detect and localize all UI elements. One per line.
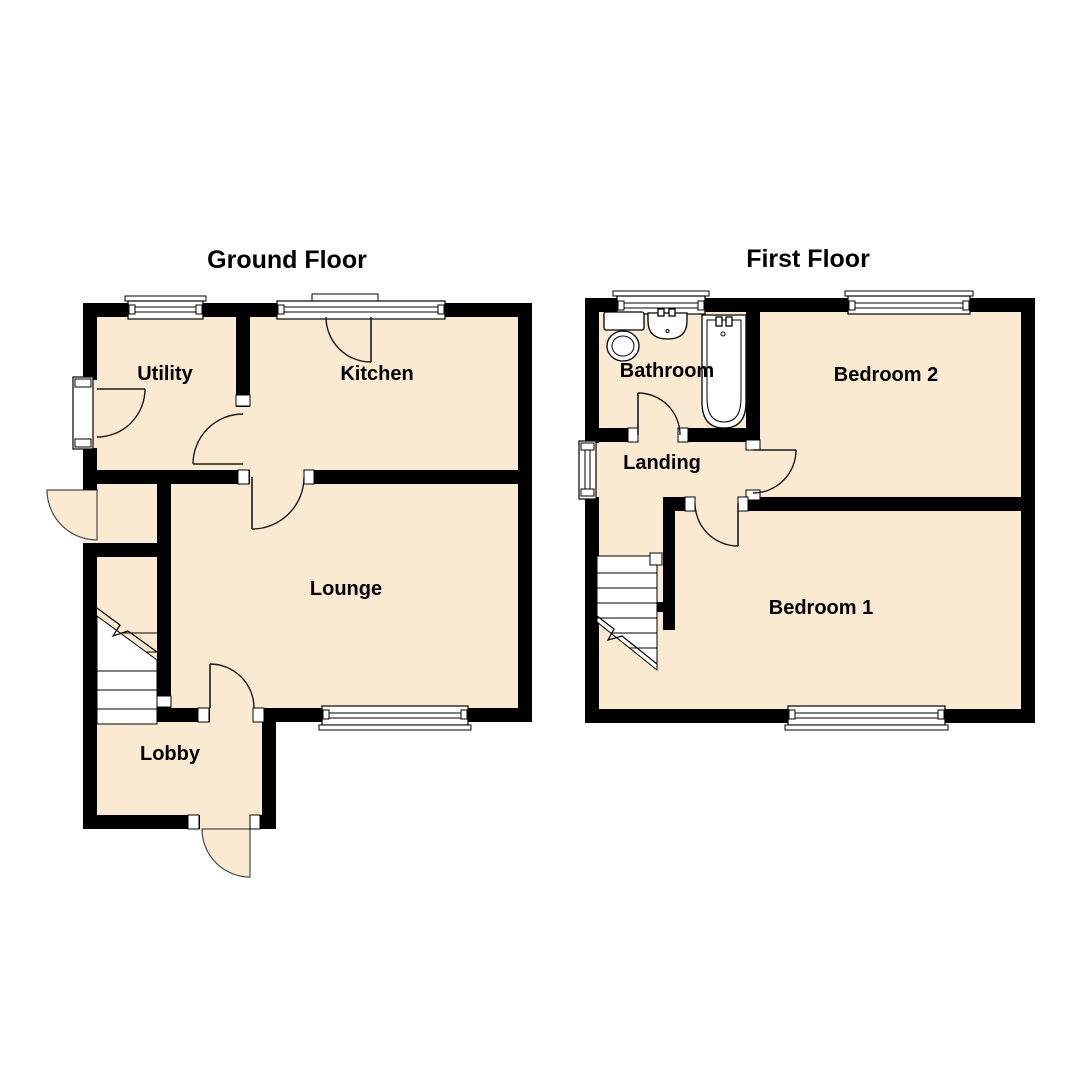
room-label-kitchen: Kitchen xyxy=(340,363,413,385)
floorplan-image: Ground Floor xyxy=(0,0,1080,1080)
room-label-landing: Landing xyxy=(623,452,701,474)
first-floor-title: First Floor xyxy=(746,245,870,273)
room-label-lounge: Lounge xyxy=(310,578,382,600)
ground-floor-plan: Ground Floor xyxy=(47,246,532,877)
bedroom-2-window xyxy=(845,291,973,314)
lobby-external-door-swing xyxy=(202,829,250,877)
room-label-bedroom-1: Bedroom 1 xyxy=(769,597,873,619)
room-label-bathroom: Bathroom xyxy=(620,360,714,382)
room-label-bedroom-2: Bedroom 2 xyxy=(834,364,938,386)
landing-window xyxy=(579,441,596,499)
room-label-lobby: Lobby xyxy=(140,743,201,765)
first-floor-plan: First Floor xyxy=(579,245,1035,730)
utility-window xyxy=(125,296,206,319)
lounge-window xyxy=(319,706,471,730)
sink-icon xyxy=(648,309,687,339)
room-label-utility: Utility xyxy=(137,363,193,385)
kitchen-window xyxy=(277,294,445,319)
front-door-swing xyxy=(47,490,97,540)
ground-floor-title: Ground Floor xyxy=(207,246,367,274)
bedroom-1-window xyxy=(785,706,948,730)
